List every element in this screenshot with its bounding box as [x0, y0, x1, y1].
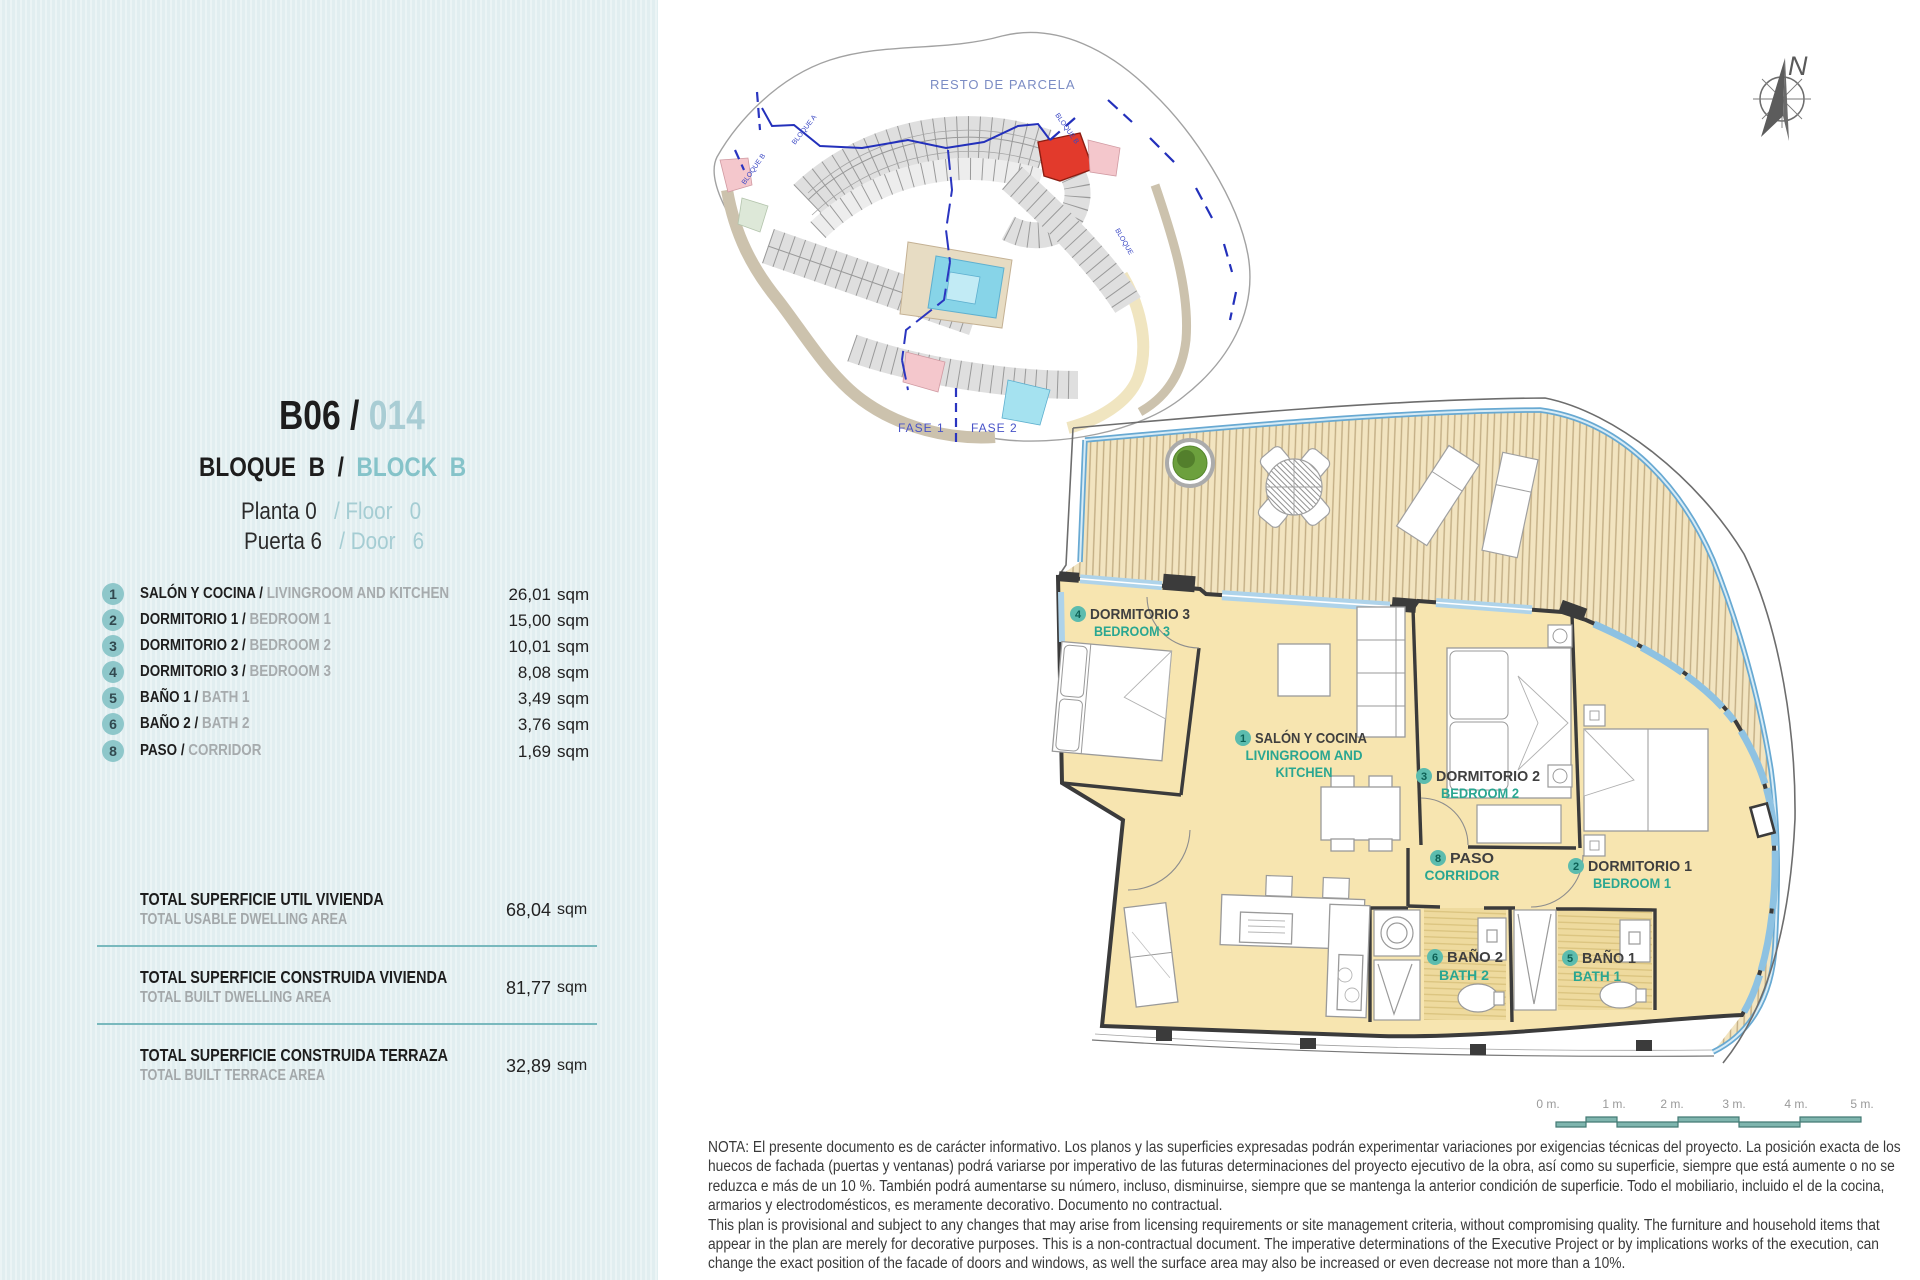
- svg-text:DORMITORIO 2: DORMITORIO 2: [1436, 768, 1540, 785]
- svg-text:8: 8: [1435, 853, 1441, 865]
- svg-text:DORMITORIO 3: DORMITORIO 3: [1090, 606, 1190, 623]
- svg-text:1: 1: [1240, 733, 1246, 745]
- svg-text:3 m.: 3 m.: [1722, 1097, 1745, 1111]
- svg-text:FASE 1: FASE 1: [898, 421, 945, 435]
- svg-text:BATH 1: BATH 1: [1573, 968, 1621, 984]
- svg-text:5: 5: [1567, 953, 1573, 965]
- svg-text:2: 2: [1573, 861, 1579, 873]
- svg-text:RESTO DE PARCELA: RESTO DE PARCELA: [930, 77, 1076, 92]
- svg-text:BEDROOM 2: BEDROOM 2: [1441, 785, 1519, 801]
- svg-text:KITCHEN: KITCHEN: [1276, 764, 1333, 780]
- svg-text:BAÑO 2: BAÑO 2: [1447, 948, 1503, 966]
- svg-text:SALÓN Y COCINA: SALÓN Y COCINA: [1255, 729, 1367, 747]
- svg-text:3: 3: [1421, 771, 1427, 783]
- svg-text:CORRIDOR: CORRIDOR: [1425, 867, 1500, 883]
- svg-text:4 m.: 4 m.: [1784, 1097, 1807, 1111]
- svg-text:1 m.: 1 m.: [1602, 1097, 1625, 1111]
- svg-text:BATH 2: BATH 2: [1439, 967, 1489, 983]
- svg-text:2 m.: 2 m.: [1660, 1097, 1683, 1111]
- svg-text:0 m.: 0 m.: [1536, 1097, 1559, 1111]
- svg-text:BEDROOM 1: BEDROOM 1: [1593, 875, 1671, 891]
- svg-text:4: 4: [1075, 609, 1082, 621]
- svg-text:FASE 2: FASE 2: [971, 421, 1018, 435]
- svg-text:5 m.: 5 m.: [1850, 1097, 1873, 1111]
- svg-text:BAÑO 1: BAÑO 1: [1582, 949, 1636, 967]
- svg-text:6: 6: [1432, 952, 1438, 964]
- svg-text:N: N: [1788, 51, 1808, 81]
- svg-text:DORMITORIO 1: DORMITORIO 1: [1588, 858, 1692, 875]
- svg-text:LIVINGROOM AND: LIVINGROOM AND: [1246, 747, 1363, 763]
- svg-text:PASO: PASO: [1450, 850, 1494, 867]
- svg-text:BEDROOM 3: BEDROOM 3: [1094, 623, 1170, 639]
